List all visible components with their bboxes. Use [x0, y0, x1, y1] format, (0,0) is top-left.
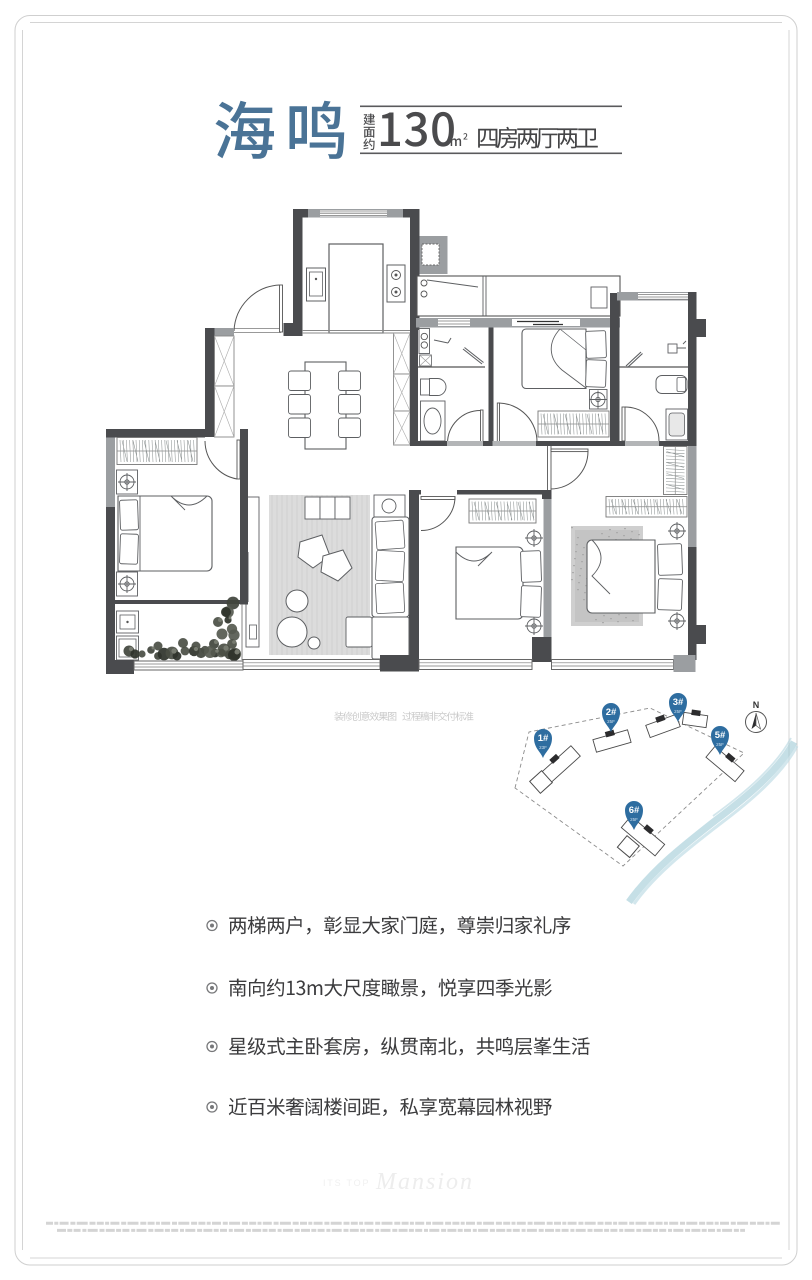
svg-text:25F: 25F	[716, 742, 724, 747]
svg-text:25F: 25F	[607, 719, 615, 724]
svg-text:Mansion: Mansion	[375, 1169, 474, 1195]
svg-text:2#: 2#	[606, 707, 617, 718]
svg-text:ITS TOP: ITS TOP	[323, 1178, 370, 1188]
svg-text:6#: 6#	[629, 805, 640, 816]
svg-text:3#: 3#	[673, 697, 684, 708]
svg-text:5#: 5#	[715, 730, 726, 741]
svg-text:25F: 25F	[630, 817, 638, 822]
svg-text:23F: 23F	[539, 745, 547, 750]
svg-text:1#: 1#	[538, 733, 549, 744]
svg-text:25F: 25F	[674, 709, 682, 714]
svg-text:N: N	[753, 700, 760, 710]
